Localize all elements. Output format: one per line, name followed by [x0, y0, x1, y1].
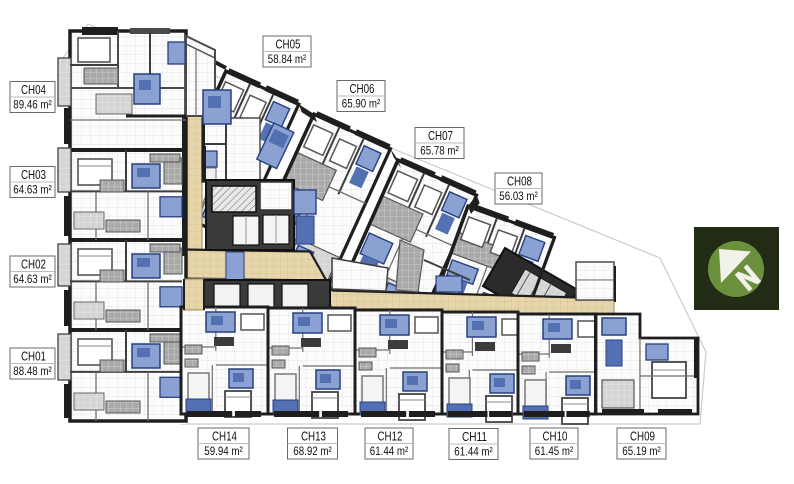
svg-text:CH08: CH08 — [507, 173, 532, 188]
svg-text:CH04: CH04 — [21, 82, 46, 97]
svg-text:65.19 m²: 65.19 m² — [622, 444, 660, 458]
svg-text:56.03 m²: 56.03 m² — [499, 189, 537, 203]
svg-text:65.78 m²: 65.78 m² — [420, 144, 458, 158]
svg-text:CH14: CH14 — [212, 428, 237, 443]
svg-text:CH13: CH13 — [301, 428, 326, 443]
svg-text:CH01: CH01 — [21, 348, 46, 363]
svg-text:58.84 m²: 58.84 m² — [268, 52, 306, 66]
svg-text:61.45 m²: 61.45 m² — [535, 444, 573, 458]
svg-text:65.90 m²: 65.90 m² — [342, 97, 380, 111]
svg-text:59.94 m²: 59.94 m² — [204, 444, 242, 458]
svg-text:64.63 m²: 64.63 m² — [13, 272, 51, 286]
svg-text:CH10: CH10 — [543, 428, 568, 443]
svg-text:CH09: CH09 — [630, 428, 655, 443]
svg-text:CH03: CH03 — [21, 167, 46, 182]
svg-text:CH07: CH07 — [428, 128, 453, 143]
svg-text:64.63 m²: 64.63 m² — [13, 183, 51, 197]
svg-text:CH05: CH05 — [276, 36, 301, 51]
svg-text:CH12: CH12 — [378, 428, 403, 443]
svg-text:61.44 m²: 61.44 m² — [370, 444, 408, 458]
svg-text:89.46 m²: 89.46 m² — [13, 98, 51, 112]
svg-text:CH02: CH02 — [21, 256, 46, 271]
svg-text:61.44 m²: 61.44 m² — [454, 445, 492, 459]
svg-text:CH11: CH11 — [462, 429, 487, 444]
svg-text:CH06: CH06 — [350, 81, 375, 96]
svg-text:88.48 m²: 88.48 m² — [13, 364, 51, 378]
svg-text:68.92 m²: 68.92 m² — [293, 444, 331, 458]
